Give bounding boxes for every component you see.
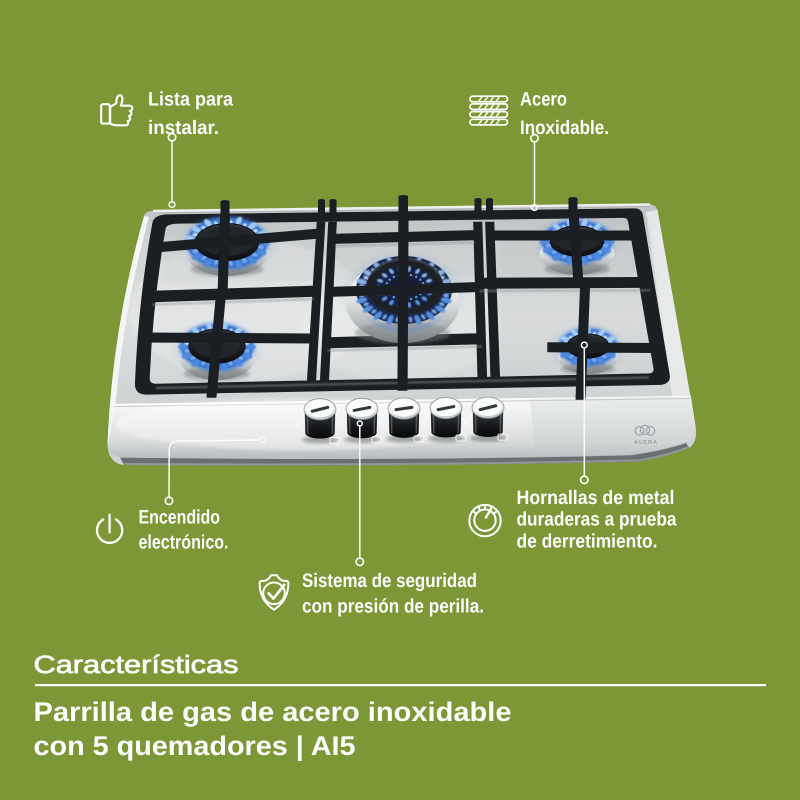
svg-text:instalar.: instalar. xyxy=(148,117,219,139)
svg-text:AVERA: AVERA xyxy=(634,440,658,446)
svg-text:con 5 quemadores | AI5: con 5 quemadores | AI5 xyxy=(34,731,356,761)
svg-text:Inoxidable.: Inoxidable. xyxy=(520,117,609,139)
svg-text:electrónico.: electrónico. xyxy=(139,532,229,554)
svg-text:Encendido: Encendido xyxy=(139,507,221,529)
svg-text:Características: Características xyxy=(34,651,239,679)
svg-text:Parrilla de gas de acero inoxi: Parrilla de gas de acero inoxidable xyxy=(34,697,512,727)
svg-text:duraderas a prueba: duraderas a prueba xyxy=(517,509,677,531)
svg-text:Sistema de seguridad: Sistema de seguridad xyxy=(302,570,477,592)
svg-text:con presión de perilla.: con presión de perilla. xyxy=(302,596,484,618)
svg-text:Acero: Acero xyxy=(520,89,567,111)
svg-text:de derretimiento.: de derretimiento. xyxy=(517,531,658,553)
svg-text:Hornallas de metal: Hornallas de metal xyxy=(517,487,675,509)
svg-text:Lista para: Lista para xyxy=(148,89,233,111)
